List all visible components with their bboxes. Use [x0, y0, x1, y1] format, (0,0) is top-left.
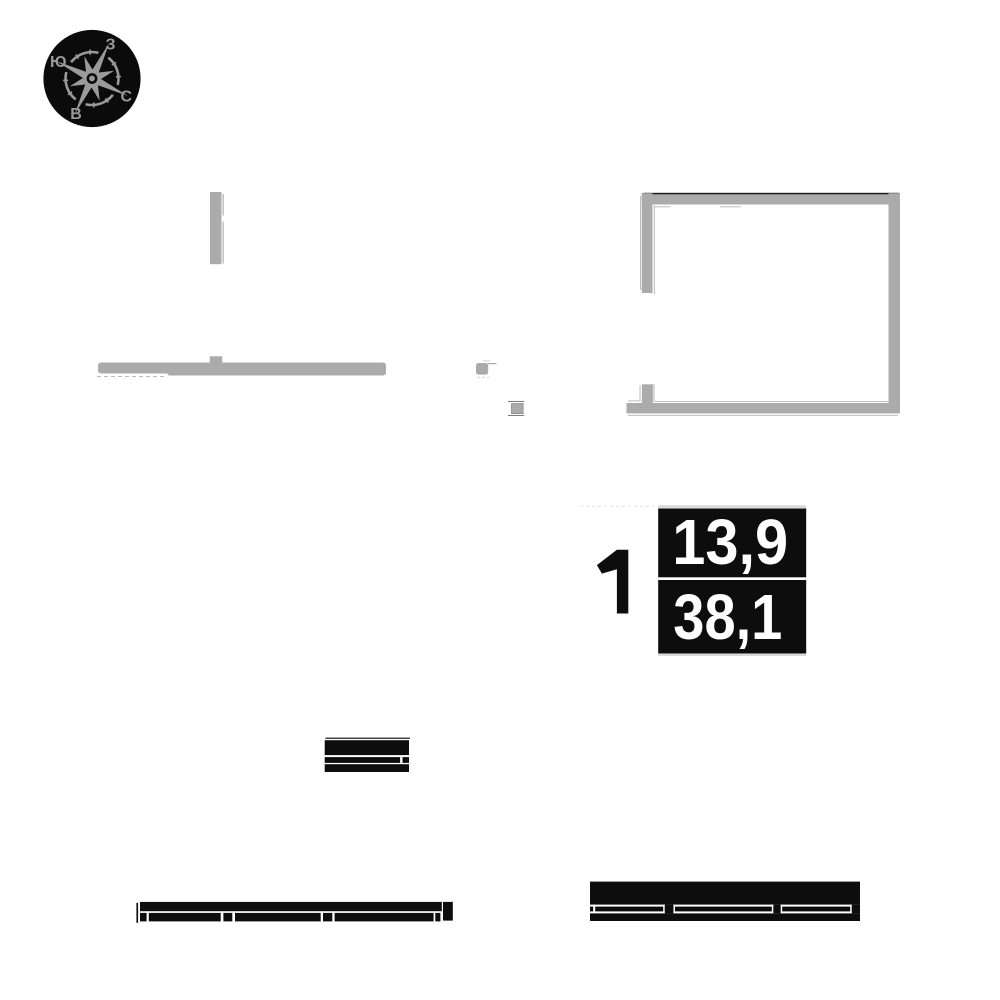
svg-text:В: В — [70, 106, 82, 123]
svg-text:Ю: Ю — [50, 54, 67, 71]
svg-text:13,9: 13,9 — [672, 506, 788, 578]
svg-text:38,1: 38,1 — [673, 581, 782, 653]
svg-text:С: С — [121, 88, 133, 105]
svg-text:З: З — [105, 37, 115, 54]
